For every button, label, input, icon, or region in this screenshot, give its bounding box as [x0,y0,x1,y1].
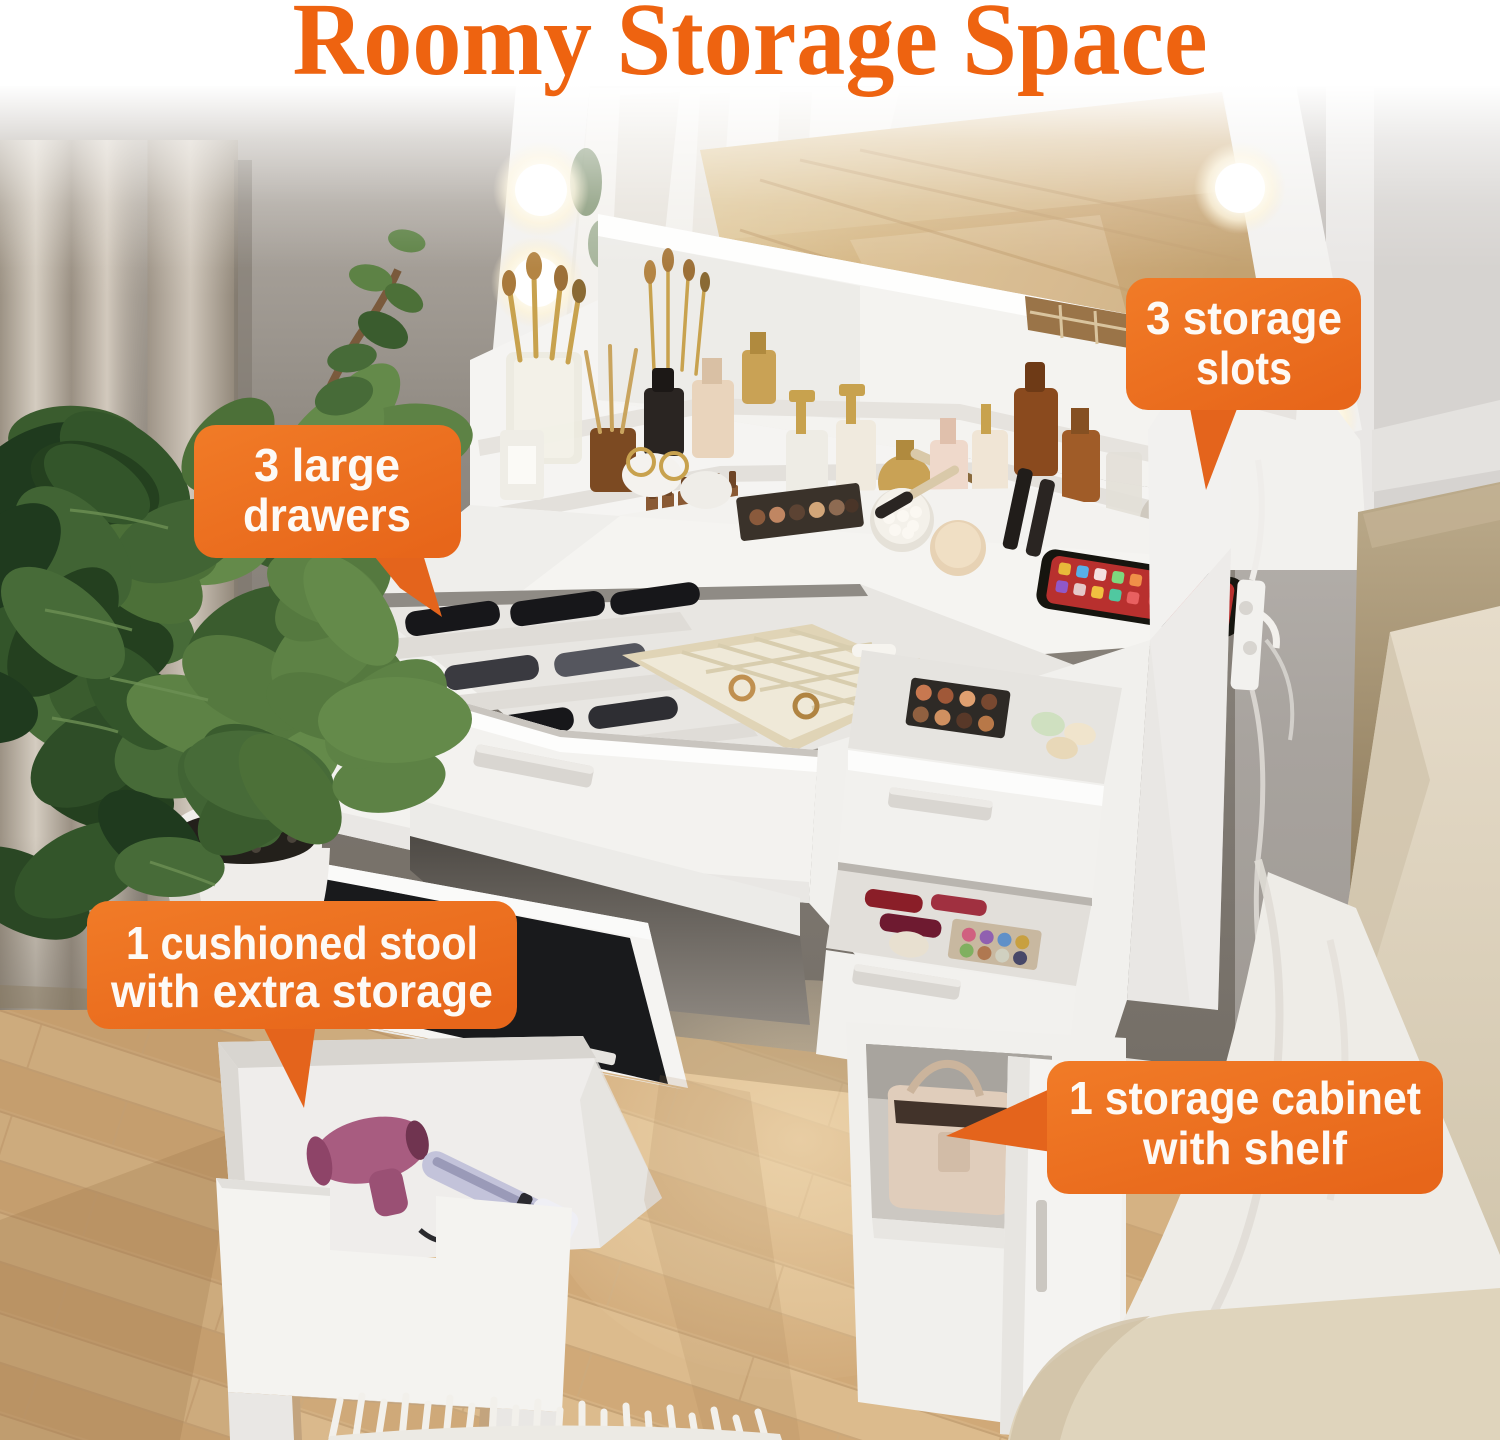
svg-text:drawers: drawers [243,489,411,541]
svg-text:3 large: 3 large [254,439,400,491]
svg-text:with shelf: with shelf [1142,1122,1348,1174]
svg-text:3 storage: 3 storage [1146,292,1342,344]
svg-text:1 storage cabinet: 1 storage cabinet [1069,1072,1421,1124]
svg-text:1 cushioned stool: 1 cushioned stool [126,917,478,969]
svg-text:with extra storage: with extra storage [110,965,493,1017]
svg-text:slots: slots [1196,342,1292,394]
